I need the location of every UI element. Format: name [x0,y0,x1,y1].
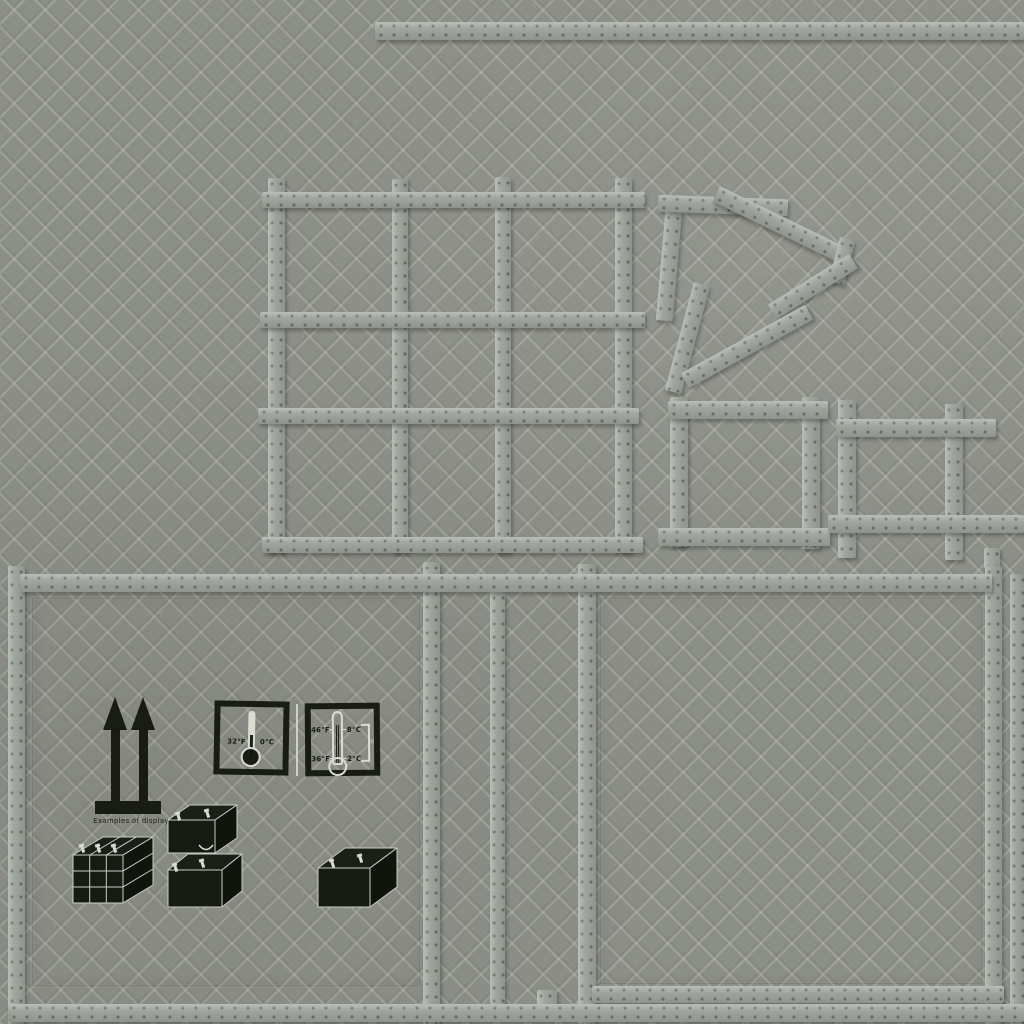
arrow-outline-strip [768,254,858,319]
panel-inset-right [600,598,982,984]
square-frame-2-tab [984,548,1000,568]
divider-line [296,704,298,776]
bottom-panel-right-strip [985,566,1002,1024]
bottom-section-top-strip [20,574,992,592]
square-frame-2-strip [828,515,1024,533]
grid-frame-vertical-strip [268,178,285,553]
tick [329,758,332,759]
grid-frame-vertical-strip [615,178,632,553]
grid-frame-vertical-strip [392,179,408,553]
bottom-panel-divider-strip [490,592,505,1004]
thermometer-bulb [240,747,260,767]
bottom-right-lower-strip [592,986,1004,1003]
grid-frame-vertical-strip [495,177,511,553]
square-frame-1-strip [670,397,688,547]
single-crate-icon [318,848,397,907]
edge-strip-right [1010,574,1024,1024]
tick [343,729,346,730]
freeze-label-celsius: 0°C [260,738,280,746]
square-frame-1-strip [658,528,830,546]
arrow-head [131,697,155,730]
tick [343,758,346,759]
bottom-panel-divider-strip [578,564,596,1024]
bottom-edge-strip [8,1004,1024,1022]
arrow-outline-strip [713,186,852,265]
bottom-panel-left-strip [8,566,25,1024]
freeze-label-fahrenheit: 32°F [222,737,246,745]
range-lower-fahrenheit: 36°F [311,755,330,763]
arrow-outline-strip [656,198,684,321]
grid-frame-horizontal-strip [258,408,639,424]
bottom-panel-divider-strip [423,562,440,1024]
stacked-crates-icon [73,837,153,903]
keep-frozen-thermometer-icon: 32°F 0°C [213,700,289,775]
arrow-head [103,697,127,730]
square-frame-1-strip [668,401,828,419]
panel-inset-left [32,598,420,986]
grid-frame-horizontal-strip [262,537,643,553]
crate-pictograms [60,795,410,915]
crate-texture-sheet: Examples of display 32°F 0°C 46°F 8°C 36… [0,0,1024,1024]
crates-with-gap-icon [168,805,242,907]
grid-frame-horizontal-strip [260,312,645,328]
tick [329,729,332,730]
thermometer-bulb-outline [328,757,347,776]
grid-frame-horizontal-strip [262,192,645,208]
square-frame-2-strip [836,419,996,437]
range-bracket [361,724,370,762]
square-frame-1-strip [802,397,820,549]
top-edge-strip [375,22,1024,40]
range-upper-fahrenheit: 46°F [311,726,330,734]
arrow-shaft [111,729,120,801]
arrow-shaft [139,729,148,801]
temperature-range-thermometer-icon: 46°F 8°C 36°F 2°C [305,703,381,777]
